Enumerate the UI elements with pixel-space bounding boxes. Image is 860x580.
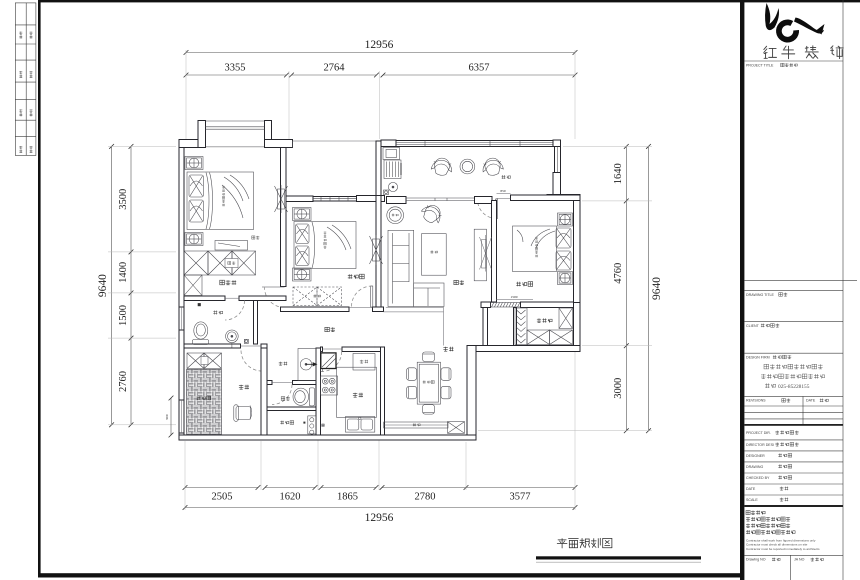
svg-text:DATE: DATE bbox=[806, 399, 816, 403]
svg-text:1620: 1620 bbox=[280, 492, 301, 503]
svg-text:DESIGNER: DESIGNER bbox=[746, 454, 765, 458]
svg-text:9640: 9640 bbox=[97, 274, 109, 297]
svg-text:SCALE: SCALE bbox=[746, 498, 758, 502]
svg-text:Drawing NO: Drawing NO bbox=[746, 558, 766, 562]
svg-text:PROJECT TITLE: PROJECT TITLE bbox=[746, 64, 774, 68]
svg-text:Contractor must be reported im: Contractor must be reported immediately … bbox=[746, 547, 820, 551]
svg-text:DRAWING TITLE: DRAWING TITLE bbox=[746, 293, 775, 297]
svg-text:1640: 1640 bbox=[613, 163, 624, 184]
svg-text:1400: 1400 bbox=[118, 262, 129, 283]
svg-text:JA NO: JA NO bbox=[794, 558, 805, 562]
svg-text:900: 900 bbox=[165, 414, 169, 420]
svg-text:1500: 1500 bbox=[118, 305, 129, 326]
svg-text:DESIGN FIRM: DESIGN FIRM bbox=[746, 355, 770, 359]
svg-text:PROJECT DIR.: PROJECT DIR. bbox=[746, 431, 771, 435]
svg-text:12956: 12956 bbox=[365, 512, 394, 524]
svg-text:DIRECTOR DESI: DIRECTOR DESI bbox=[746, 443, 774, 447]
svg-text:4760: 4760 bbox=[613, 263, 624, 284]
svg-text:3500: 3500 bbox=[118, 189, 129, 210]
svg-text:1500: 1500 bbox=[511, 295, 518, 299]
svg-text:1865: 1865 bbox=[337, 492, 358, 503]
svg-text:3000: 3000 bbox=[613, 378, 624, 399]
svg-text:3355: 3355 bbox=[225, 63, 246, 74]
svg-text:3577: 3577 bbox=[510, 492, 531, 503]
svg-text:CHECKED BY: CHECKED BY bbox=[746, 476, 770, 480]
svg-text:025-85228155: 025-85228155 bbox=[778, 384, 810, 390]
svg-text:6357: 6357 bbox=[469, 63, 490, 74]
svg-text:2760: 2760 bbox=[118, 371, 129, 392]
svg-text:DRAWING: DRAWING bbox=[746, 465, 763, 469]
svg-text:REVISIONS: REVISIONS bbox=[746, 399, 766, 403]
svg-text:CLIENT: CLIENT bbox=[746, 324, 760, 328]
svg-text:2764: 2764 bbox=[324, 63, 346, 74]
svg-text:9640: 9640 bbox=[651, 277, 663, 300]
svg-text:850: 850 bbox=[500, 189, 506, 193]
svg-text:2780: 2780 bbox=[415, 492, 436, 503]
svg-text:2505: 2505 bbox=[212, 492, 233, 503]
svg-text:DATE: DATE bbox=[746, 487, 756, 491]
svg-text:12956: 12956 bbox=[365, 39, 394, 51]
